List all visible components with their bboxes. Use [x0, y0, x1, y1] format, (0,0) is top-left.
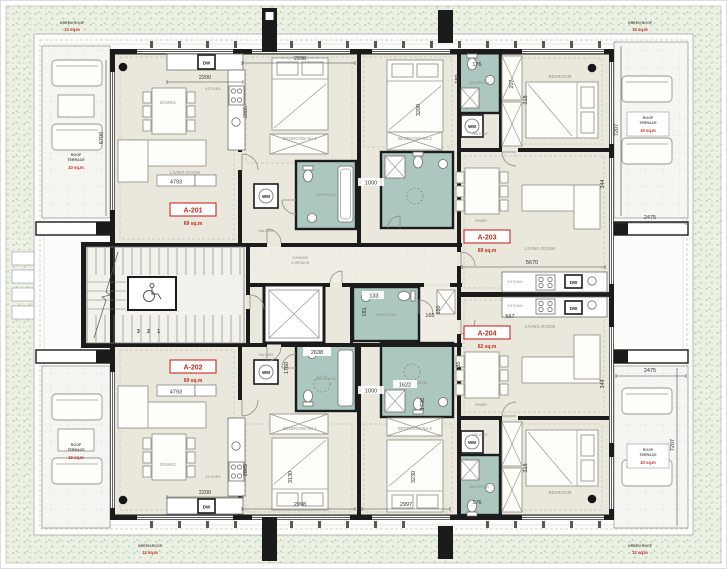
dim: 6700: [99, 132, 105, 144]
outdoor-sofa: [622, 138, 672, 164]
apartment-area-a201: 69 sq.m: [184, 221, 203, 227]
dim: 150: [436, 305, 442, 314]
kitchen-sink: [588, 301, 596, 309]
sofa-corner: [574, 335, 600, 379]
chimney-shaft: [438, 526, 453, 559]
dim: 567: [505, 314, 514, 320]
outdoor-sofa: [52, 60, 102, 86]
double-bed: [272, 438, 328, 510]
outdoor-sofa: [52, 458, 102, 484]
terrace-area: 13 sq.m: [632, 27, 648, 32]
dim: 2200: [199, 75, 211, 81]
room-label-bathroom: BATHROOM: [469, 81, 489, 85]
column-dot: [588, 64, 597, 73]
room-label-bedroom2: BEDROOM No.2: [398, 426, 433, 431]
dim: 344: [600, 179, 606, 188]
room-label-living: LIVING ROOM: [170, 170, 200, 175]
room-label-hallway: HALLWAY: [472, 433, 488, 437]
dim: 344: [600, 379, 606, 388]
washing-machine-label: WM: [262, 370, 270, 375]
room-label-bathroom: BATHROOM: [316, 193, 336, 197]
column-dot: [119, 63, 128, 72]
dim: 2475: [644, 215, 656, 221]
kitchen-sink: [232, 442, 240, 450]
terrace-area: 10 sq.m: [640, 128, 656, 133]
terrace-area: 12 sq.m: [632, 550, 648, 555]
dishwasher-label: DW: [570, 280, 578, 285]
dim: 318: [523, 463, 529, 472]
sofa-corner: [574, 185, 600, 229]
toilet: [304, 170, 313, 182]
dim: 2998: [294, 56, 306, 62]
terrace-title: GREEN ROOF: [60, 21, 85, 25]
terrace-title: TERRACE: [67, 158, 85, 162]
column-dot: [588, 495, 597, 504]
room-label-bedroom1: BEDROOM No.1: [283, 426, 318, 431]
dim: 2200: [199, 490, 211, 496]
terrace-title: GREEN ROOF: [628, 544, 653, 548]
room-label-bedroom2: BEDROOM No.2: [398, 136, 433, 141]
outdoor-sofa: [622, 388, 672, 414]
terrace-title: TERRACE: [639, 121, 657, 125]
room-label-kitchen: KITCHEN: [508, 304, 523, 308]
kitchen-sink: [232, 118, 240, 126]
apartment-area-a203: 69 sq.m: [478, 248, 497, 254]
dim: 1000: [365, 181, 377, 187]
legend-box: [12, 288, 34, 301]
room-label-bedroom1: BEDROOM No.1: [283, 136, 318, 141]
room-label-bathroom: BATHROOM: [316, 377, 336, 381]
dim: 5670: [526, 260, 538, 266]
terrace-title: GREEN ROOF: [628, 21, 653, 25]
toilet: [304, 390, 313, 402]
terrace-title: ROOF: [71, 443, 82, 447]
stove-icon: [229, 86, 244, 105]
dim: 1760: [284, 362, 290, 374]
room-label-hallway: HALLWAY: [258, 353, 274, 357]
terrace-title: TERRACE: [639, 453, 657, 457]
dim: 7207: [614, 124, 620, 136]
room-label-hallway: HALLWAY: [258, 229, 274, 233]
terrace-title: ROOF: [643, 116, 654, 120]
dim: 1736: [420, 398, 426, 410]
outdoor-sofa: [622, 76, 672, 102]
apartment-id-a201: A-201: [183, 208, 202, 215]
dishwasher-label: DW: [203, 505, 211, 510]
chimney-shaft: [438, 10, 453, 43]
dim: 2005: [243, 464, 249, 476]
double-bed: [526, 82, 598, 138]
room-label-bedroom: BEDROOM: [548, 74, 571, 79]
room-label-bathroom: BATHROOM: [469, 485, 489, 489]
dim: 2475: [644, 368, 656, 374]
terrace-area: 10 sq.m: [640, 460, 656, 465]
room-label-kitchen: KITCHEN: [206, 475, 221, 479]
room-label-kitchen: KITCHEN: [206, 87, 221, 91]
outdoor-table: [58, 95, 94, 117]
terrace-title: TERRACE: [67, 448, 85, 452]
dim: 181: [362, 307, 368, 316]
chimney-shaft: [262, 517, 277, 561]
outdoor-sofa: [52, 394, 102, 420]
room-label-living: LIVING ROOM: [525, 324, 555, 329]
room-label-dining: DINING: [160, 462, 176, 467]
outdoor-sofa: [52, 124, 102, 150]
dining-table: [456, 168, 508, 214]
dim: 535: [456, 361, 462, 370]
dishwasher-label: DW: [570, 306, 578, 311]
terrace-title: GREEN ROOF: [138, 544, 163, 548]
terrace-area: 12 sq.m: [142, 550, 158, 555]
legend-box: [12, 270, 34, 283]
room-label-kitchen: KITCHEN: [508, 280, 523, 284]
dim: 3130: [288, 471, 294, 483]
stove-icon: [229, 462, 244, 481]
room-label-living: LIVING ROOM: [525, 246, 555, 251]
dim: 2997: [400, 502, 412, 508]
dim: 207: [509, 79, 515, 88]
washing-machine-label: WM: [262, 194, 270, 199]
double-bed: [272, 58, 328, 130]
dim: 1000: [365, 389, 377, 395]
apartment-id-a202: A-202: [183, 365, 202, 372]
bathtub: [338, 350, 353, 406]
dim: 1622: [399, 383, 411, 389]
dining-table: [143, 434, 195, 480]
dim: 2638: [311, 350, 323, 356]
apartment-id-a203: A-203: [477, 235, 496, 242]
legend-box: [12, 306, 34, 319]
floor-plan-drawing: 3 2 1 DW WM DW WM: [0, 0, 727, 569]
stove-icon: [536, 275, 555, 290]
room-label-dining: DINING: [475, 219, 487, 223]
dim: 4793: [170, 180, 182, 186]
toilet: [414, 156, 423, 168]
apartment-id-a204: A-204: [477, 331, 496, 338]
washbasin: [308, 214, 317, 223]
dim: 2005: [243, 106, 249, 118]
floor-plan-page: 3 2 1 DW WM DW WM: [0, 0, 727, 569]
room-label-bedroom: BEDROOM: [548, 490, 571, 495]
dim: 3200: [416, 104, 422, 116]
room-label-dining: DINING: [160, 100, 176, 105]
washing-machine-label: WM: [468, 124, 476, 129]
corridor-grid: [250, 247, 455, 281]
sofa-corner: [118, 140, 148, 182]
terrace-area: 10 sq.m: [68, 165, 84, 170]
terrace-area: 10 sq.m: [68, 455, 84, 460]
legend-box: [12, 252, 34, 265]
dim: 176: [472, 500, 481, 506]
double-bed: [526, 430, 598, 486]
washing-machine-label: WM: [468, 440, 476, 445]
double-bed: [387, 60, 443, 132]
shaft-vent: [266, 12, 274, 20]
terrace-title: ROOF: [643, 448, 654, 452]
dim: 180: [455, 74, 461, 83]
apartment-area-a204: 62 sq.m: [478, 344, 497, 350]
sofa-corner: [118, 386, 148, 428]
kitchen-counter: [228, 418, 245, 496]
dim: 3230: [411, 471, 417, 483]
stove-icon: [536, 299, 555, 314]
dining-table: [143, 88, 195, 134]
dim: 4793: [170, 390, 182, 396]
dim: 2998: [294, 502, 306, 508]
room-label-bathroom: BATHROOM: [376, 313, 396, 317]
dim: 318: [523, 95, 529, 104]
corridor-label-line1: COMMON: [292, 256, 308, 260]
stair-step-numbers: 3 2 1: [137, 329, 163, 335]
dim: 7207: [670, 439, 676, 451]
room-label-hallway: HALLWAY: [472, 132, 488, 136]
kitchen-sink: [588, 277, 596, 285]
corridor-label-line2: CORRIDOR: [291, 261, 310, 265]
dishwasher-label: DW: [203, 61, 211, 66]
dim: 176: [472, 62, 481, 68]
washbasin: [439, 398, 448, 407]
terrace-area: 13 sq.m: [64, 27, 80, 32]
column-dot: [119, 496, 128, 505]
dining-table: [456, 352, 508, 398]
dim: 165: [425, 313, 434, 319]
room-label-dining: DINING: [475, 403, 487, 407]
dim: 133: [369, 294, 378, 300]
apartment-area-a202: 69 sq.m: [184, 378, 203, 384]
toilet: [398, 292, 410, 301]
terrace-title: ROOF: [71, 153, 82, 157]
washbasin: [439, 160, 448, 169]
